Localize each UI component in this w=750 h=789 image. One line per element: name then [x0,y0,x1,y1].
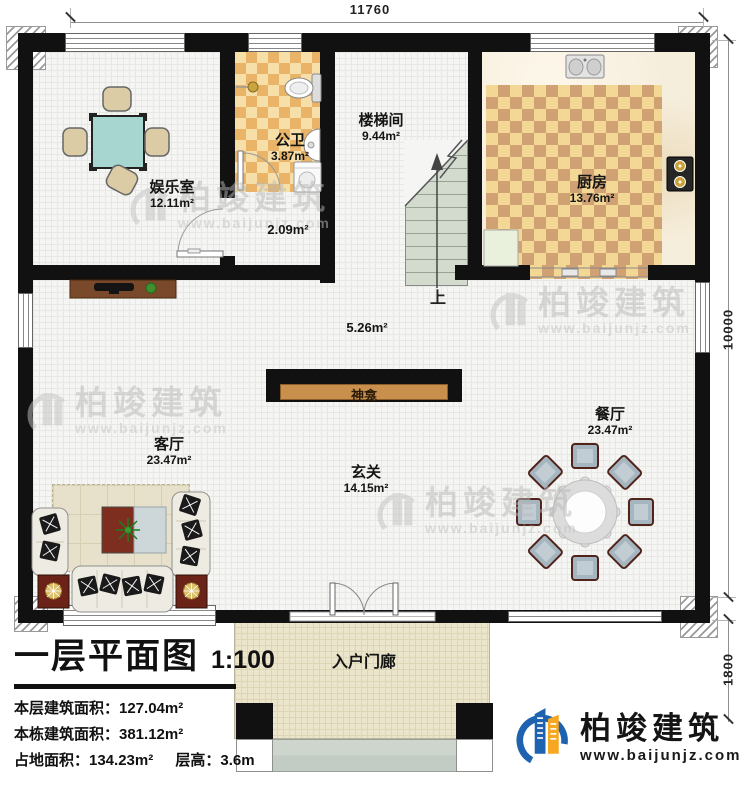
room-label-kitchen: 厨房 13.76m² [542,175,642,205]
dimension-right-value: 10000 [721,304,736,356]
window-living-front [63,605,216,626]
dimension-top-value: 11760 [300,2,440,17]
company-name: 柏竣建筑 [580,713,741,744]
porch-column-right [456,703,493,739]
window-left-living [18,293,33,348]
wall-entertainment-living [18,265,335,280]
window-bathroom [248,33,302,52]
shrine-label: 神龛 [314,385,414,404]
floor-plan-page: 柏竣建筑www.baijunjz.com 柏竣建筑www.baijunjz.co… [0,0,750,789]
bathroom-floor [235,52,320,192]
company-logo: 柏竣建筑 www.baijunjz.com [514,700,741,776]
porch-steps [272,739,457,772]
stat-floor-height: 层高：3.6m [175,752,254,769]
stairs-up-label: 上 [426,284,450,308]
room-label-corridor: 5.26m² [327,321,407,335]
porch-column-base-right [456,739,493,772]
company-website: www.baijunjz.com [580,747,741,764]
window-kitchen [530,33,655,52]
room-label-dining: 餐厅 23.47m² [560,407,660,437]
window-entertainment [65,33,185,52]
dimension-ext [712,597,736,598]
dimension-porch-value: 1800 [721,648,736,692]
room-label-vestibule: 2.09m² [252,223,324,237]
wall-kitchen-bottom-right [648,265,710,280]
dimension-line-top [70,22,704,23]
page-title: 一层平面图 [14,628,199,679]
drawing-scale: 1:100 [211,646,275,675]
stat-footprint-row: 占地面积：134.23m² 层高：3.6m [14,748,275,774]
title-block: 一层平面图 1:100 本层建筑面积：127.04m² 本栋建筑面积：381.1… [14,628,275,774]
wall-stairwell-left [320,52,335,283]
stat-floor-area: 本层建筑面积：127.04m² [14,696,275,722]
window-right-dining [695,282,710,353]
stat-footprint: 占地面积：134.23m² [14,752,153,769]
living-room-rug [52,484,190,572]
room-label-bathroom: 公卫 3.87m² [250,133,330,163]
room-label-porch: 入户门廊 [294,654,434,672]
room-label-living: 客厅 23.47m² [119,437,219,467]
stat-building-area: 本栋建筑面积：381.12m² [14,722,275,748]
company-logo-icon [514,700,572,776]
title-underline [14,684,236,689]
room-label-stairwell: 楼梯间 9.44m² [331,113,431,143]
kitchen-door-tile [530,265,648,279]
wall-entertainment-bathroom [220,52,235,198]
wall-stairwell-kitchen [468,52,482,268]
window-dining-front [508,611,662,622]
room-label-foyer: 玄关 14.15m² [316,465,416,495]
room-label-entertainment: 娱乐室 12.11m² [122,180,222,210]
wall-kitchen-bottom-left [455,265,530,280]
